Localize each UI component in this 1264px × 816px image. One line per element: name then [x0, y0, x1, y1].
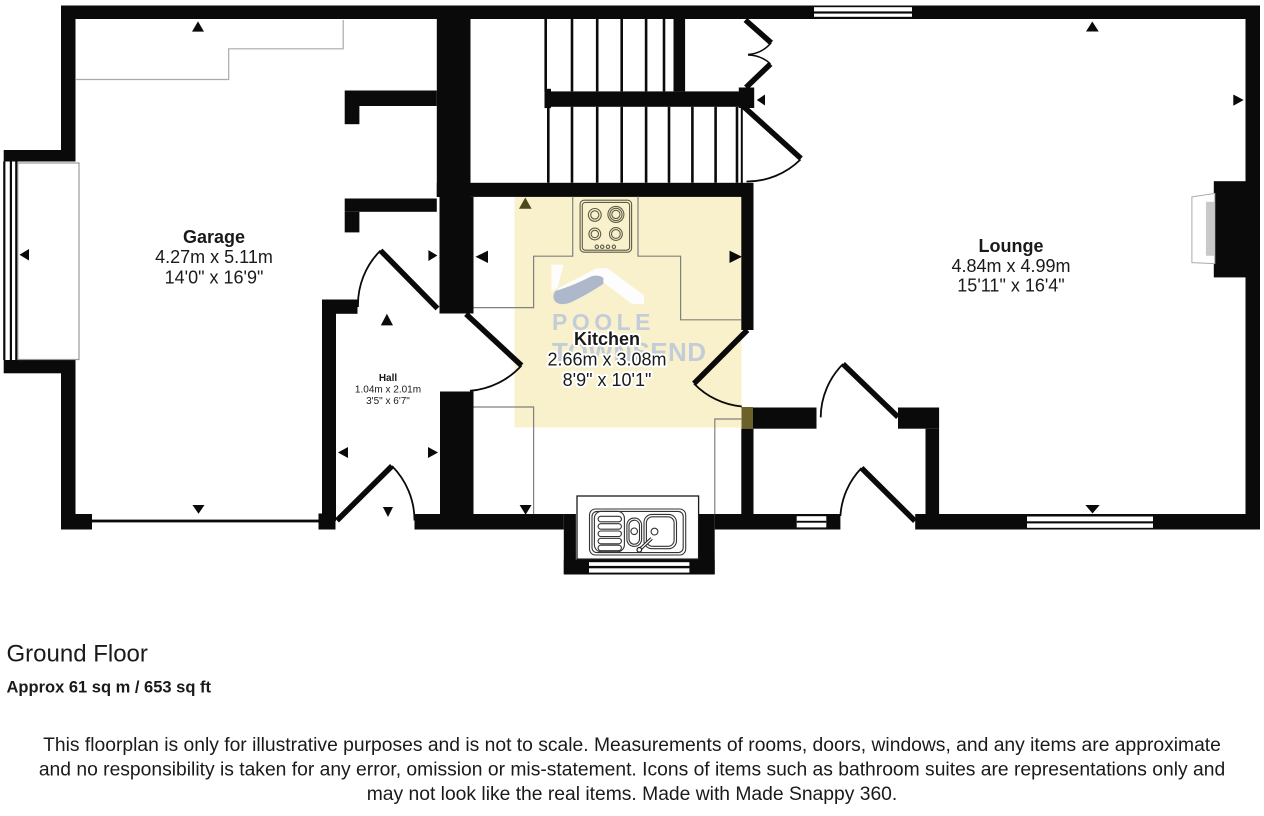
svg-text:1.04m x 2.01m: 1.04m x 2.01m: [355, 385, 421, 396]
svg-text:14'0" x 16'9": 14'0" x 16'9": [165, 268, 264, 288]
svg-text:Approx 61 sq m / 653 sq ft: Approx 61 sq m / 653 sq ft: [7, 679, 212, 697]
svg-text:2.66m x 3.08m: 2.66m x 3.08m: [547, 350, 666, 370]
svg-text:Lounge: Lounge: [979, 236, 1044, 256]
svg-text:may not look like the real ite: may not look like the real items. Made w…: [367, 784, 898, 805]
svg-text:3'5" x 6'7": 3'5" x 6'7": [366, 396, 410, 407]
svg-text:and no responsibility is taken: and no responsibility is taken for any e…: [39, 760, 1225, 781]
svg-text:8'9" x 10'1": 8'9" x 10'1": [563, 370, 652, 390]
svg-text:4.27m x 5.11m: 4.27m x 5.11m: [155, 247, 273, 267]
svg-text:This floorplan is only for ill: This floorplan is only for illustrative …: [43, 735, 1221, 756]
svg-text:Ground Floor: Ground Floor: [7, 641, 148, 668]
svg-text:4.84m x 4.99m: 4.84m x 4.99m: [951, 256, 1070, 276]
svg-text:15'11" x 16'4": 15'11" x 16'4": [957, 276, 1064, 296]
svg-text:Hall: Hall: [379, 373, 398, 384]
svg-text:Garage: Garage: [183, 227, 245, 247]
svg-text:Kitchen: Kitchen: [574, 329, 640, 349]
